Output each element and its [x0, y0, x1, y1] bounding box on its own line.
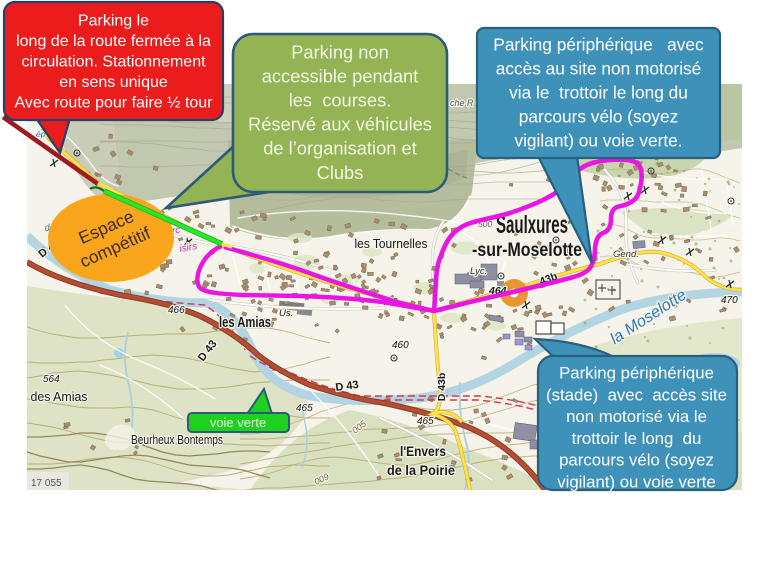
svg-text:l'Envers: l'Envers: [400, 444, 446, 459]
svg-text:D 43b: D 43b: [436, 373, 448, 402]
svg-text:de la Poirie: de la Poirie: [387, 463, 455, 478]
svg-text:-sur-Moselotte: -sur-Moselotte: [472, 239, 582, 261]
svg-text:466: 466: [168, 305, 185, 316]
svg-text:564: 564: [43, 374, 60, 385]
svg-text:voie verte: voie verte: [210, 415, 266, 430]
svg-text:Lyc.: Lyc.: [470, 266, 487, 277]
svg-text:460: 460: [392, 340, 409, 351]
svg-text:Us.: Us.: [279, 308, 293, 319]
svg-text:Parking périphérique avecacc: Parking périphérique avecaccès au site n…: [493, 35, 704, 151]
svg-text:465: 465: [417, 416, 434, 427]
svg-text:Gend.: Gend.: [613, 249, 639, 260]
svg-text:des Amias: des Amias: [31, 389, 88, 404]
svg-text:les Amias: les Amias: [219, 315, 271, 331]
svg-text:465: 465: [296, 403, 313, 414]
svg-text:che R: che R: [450, 98, 474, 108]
svg-text:les Tournelles: les Tournelles: [355, 236, 428, 251]
svg-text:Beurheux Bontemps: Beurheux Bontemps: [131, 433, 223, 447]
svg-text:17 055: 17 055: [31, 478, 62, 489]
svg-text:470: 470: [721, 295, 738, 306]
